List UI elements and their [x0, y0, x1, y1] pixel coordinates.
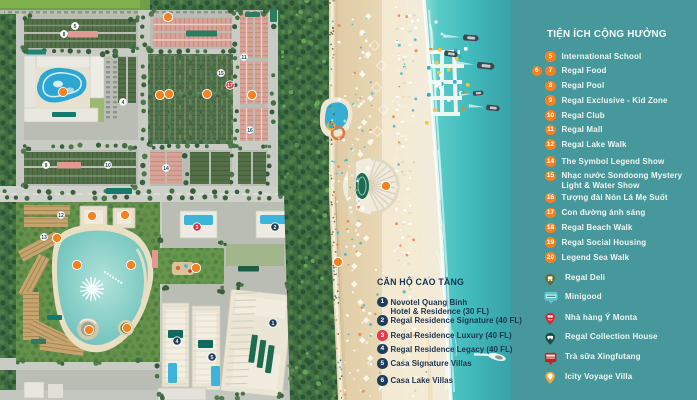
svg-text:17: 17: [227, 83, 233, 89]
svg-text:5: 5: [211, 355, 214, 361]
svg-text:8: 8: [63, 32, 66, 38]
svg-text:4: 4: [176, 339, 179, 345]
svg-text:4: 4: [122, 100, 125, 106]
svg-text:11: 11: [241, 55, 247, 61]
svg-text:1: 1: [272, 321, 275, 327]
svg-text:9: 9: [45, 163, 48, 169]
svg-text:16: 16: [247, 128, 253, 134]
svg-text:2: 2: [274, 225, 277, 231]
svg-text:3: 3: [196, 225, 199, 231]
svg-text:5: 5: [74, 24, 77, 30]
svg-text:14: 14: [163, 166, 169, 172]
svg-text:13: 13: [41, 235, 47, 241]
svg-text:15: 15: [218, 71, 224, 77]
svg-text:10: 10: [105, 163, 111, 169]
svg-text:12: 12: [58, 213, 64, 219]
